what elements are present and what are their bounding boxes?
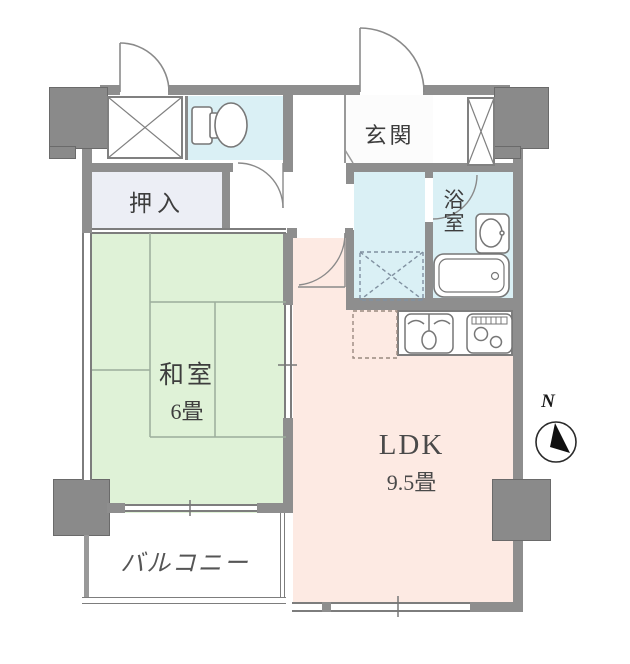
shoe-storage-x-box — [468, 98, 494, 165]
toilet-icon — [192, 103, 247, 147]
genkan-door-arc — [360, 28, 424, 92]
ldk-door-arc — [298, 233, 345, 287]
genkan-label: 玄関 — [346, 118, 433, 150]
bathroom-label-char: 浴 — [441, 189, 467, 212]
ldk-name: LDK — [339, 429, 484, 462]
ldk-size: 9.5畳 — [339, 465, 484, 497]
washitsu-name: 和室 — [110, 355, 264, 391]
bathroom-label: 浴 室 — [441, 189, 467, 235]
ldk-label: LDK 9.5畳 — [339, 429, 484, 497]
oshiire-label: 押入 — [92, 184, 222, 218]
bathtub-icon — [434, 254, 509, 297]
floor-plan: 押入 玄関 浴 室 和室 6畳 LDK 9.5畳 バルコニー N — [0, 0, 630, 664]
washing-machine-space — [360, 252, 423, 300]
refrigerator-space — [353, 311, 397, 358]
genkan-step-line — [345, 150, 353, 163]
washbasin-icon — [476, 214, 509, 253]
storage-x-box — [108, 97, 182, 158]
stove-icon — [467, 314, 512, 353]
bathroom-label-char: 室 — [441, 212, 467, 235]
door-arc — [120, 43, 169, 92]
compass-north-label: N — [536, 391, 560, 413]
kitchen-sink-icon — [405, 314, 453, 353]
washitsu-label: 和室 6畳 — [110, 355, 264, 426]
washitsu-size: 6畳 — [110, 394, 264, 426]
balcony-label: バルコニー — [95, 543, 275, 578]
compass-icon — [536, 422, 576, 462]
toilet-door-arc — [238, 163, 283, 208]
